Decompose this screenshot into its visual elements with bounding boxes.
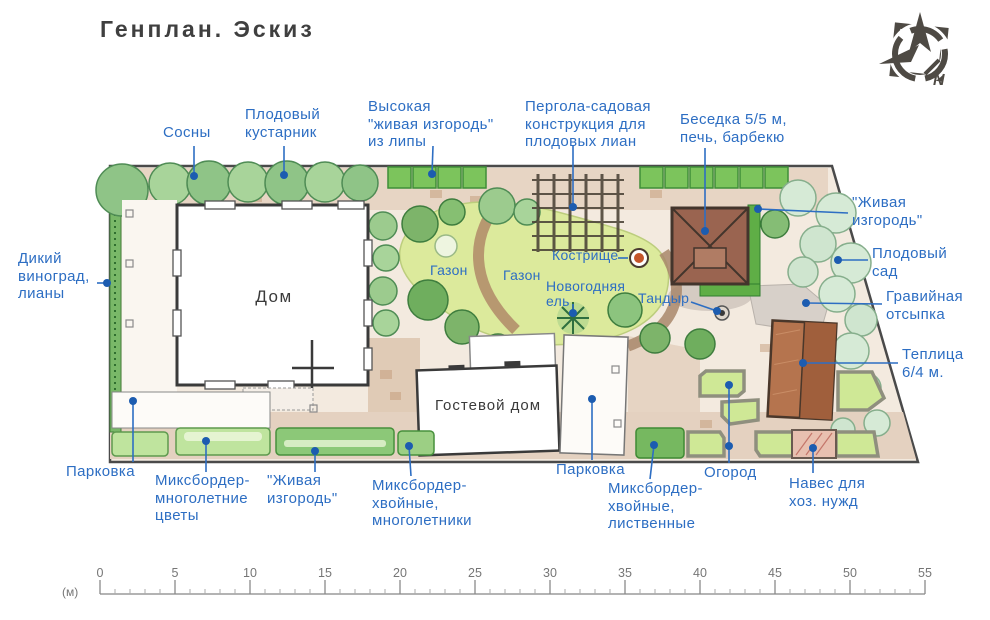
compass-north-icon: N <box>879 12 946 89</box>
parking-pad-left <box>112 392 270 428</box>
scale-tick-number: 15 <box>310 566 340 580</box>
plan-label-guest-house: Гостевой дом <box>418 397 558 414</box>
plan-label-lawn-2: Газон <box>503 268 541 283</box>
callout-pergola: Пергола-садовая конструкция для плодовых… <box>525 98 651 151</box>
scale-unit-label: (м) <box>62 585 78 599</box>
callout-hedge-bottom: "Живая изгородь" <box>267 472 338 507</box>
callout-mixborder-conifer-deciduous: Миксбордер- хвойные, лиственные <box>608 480 703 533</box>
callout-utility-shed: Навес для хоз. нужд <box>789 475 865 510</box>
scale-tick-number: 10 <box>235 566 265 580</box>
callout-pines: Сосны <box>163 124 211 142</box>
callout-mixborder-conifer-perennials: Миксбордер- хвойные, многолетники <box>372 477 472 530</box>
utility-shed-structure <box>792 430 836 458</box>
callout-greenhouse: Теплица 6/4 м. <box>902 346 964 381</box>
scale-tick-number: 35 <box>610 566 640 580</box>
plan-label-lawn-1: Газон <box>430 263 468 278</box>
callout-gravel: Гравийная отсыпка <box>886 288 963 323</box>
scale-tick-number: 45 <box>760 566 790 580</box>
scale-tick-number: 55 <box>910 566 940 580</box>
page-title: Генплан. Эскиз <box>100 16 315 43</box>
site-plan-drawing: N <box>0 0 990 620</box>
genplan-page: { "title": "Генплан. Эскиз", "compass": … <box>0 0 990 620</box>
callout-gazebo: Беседка 5/5 м, печь, барбекю <box>680 111 787 146</box>
plan-label-house: Дом <box>238 287 310 307</box>
scale-ticks <box>100 580 925 594</box>
callout-wild-grape: Дикий виноград, лианы <box>18 250 90 303</box>
callout-fruit-shrub: Плодовый кустарник <box>245 106 320 141</box>
scale-tick-number: 30 <box>535 566 565 580</box>
greenhouse-structure <box>768 320 837 419</box>
callout-kitchen-garden: Огород <box>704 464 757 482</box>
scale-tick-number: 50 <box>835 566 865 580</box>
callout-mixborder-flowers: Миксбордер- многолетние цветы <box>155 472 250 525</box>
callout-parking-left: Парковка <box>66 463 135 481</box>
plan-label-spruce: Новогодняя ель <box>546 279 625 310</box>
callout-hedge-right: "Живая изгородь" <box>852 194 923 229</box>
scale-tick-number: 20 <box>385 566 415 580</box>
parking-pad-center <box>560 335 628 455</box>
scale-bar <box>100 580 925 594</box>
fire-pit <box>630 249 648 267</box>
callout-orchard: Плодовый сад <box>872 245 947 280</box>
svg-text:N: N <box>933 72 945 89</box>
callout-parking-center: Парковка <box>556 461 625 479</box>
scale-tick-number: 0 <box>85 566 115 580</box>
scale-tick-number: 5 <box>160 566 190 580</box>
gazebo-structure <box>672 205 760 296</box>
plan-label-fire-pit: Кострище <box>552 248 619 263</box>
scale-tick-number: 25 <box>460 566 490 580</box>
callout-linden-hedge: Высокая "живая изгородь" из липы <box>368 98 494 151</box>
scale-tick-number: 40 <box>685 566 715 580</box>
plan-label-tandoor: Тандыр <box>638 291 689 306</box>
